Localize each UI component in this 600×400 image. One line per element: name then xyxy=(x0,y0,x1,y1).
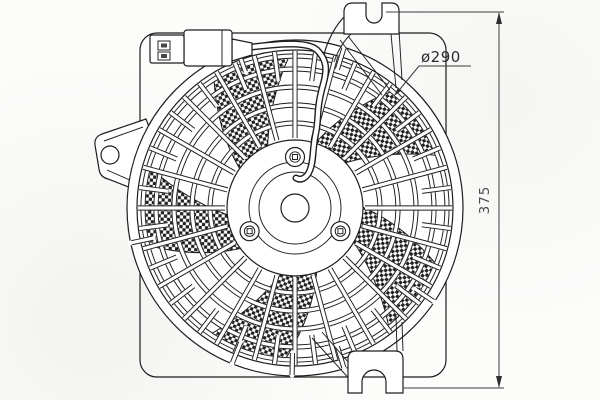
drawing-sheet: ø290 375 xyxy=(0,0,600,400)
dimension-arrow-down xyxy=(496,376,502,388)
fan-assembly-drawing: ø290 375 xyxy=(0,0,600,400)
hub-screw xyxy=(240,222,259,241)
dimension-arrow-up xyxy=(496,12,502,24)
bottom-bracket-slot xyxy=(348,351,403,393)
height-dimension-label: 375 xyxy=(477,186,493,215)
connector-pin xyxy=(161,44,167,48)
top-bracket-slot xyxy=(344,3,399,34)
hub-screw xyxy=(331,222,350,241)
bracket-hole xyxy=(101,146,119,164)
hub-screw xyxy=(286,148,305,167)
connector-pin xyxy=(161,54,167,58)
motor-hub xyxy=(227,140,363,276)
diameter-dimension-label: ø290 xyxy=(421,48,461,66)
